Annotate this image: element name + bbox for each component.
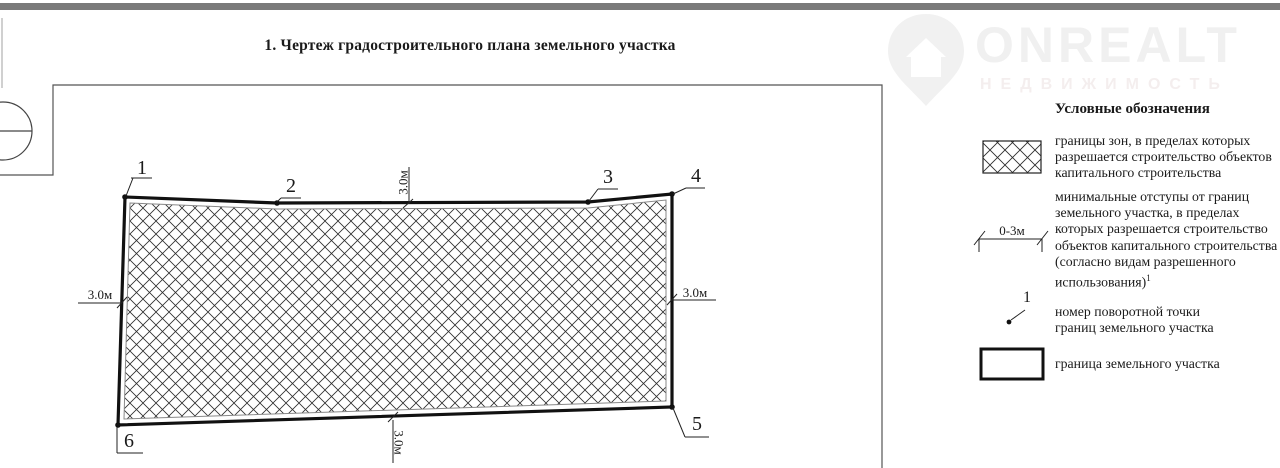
- footnote-marker: 1: [1146, 273, 1151, 283]
- dim-label-top: 3.0м: [397, 162, 410, 204]
- legend-item-turning-point: номер поворотной точки границ земельного…: [1055, 304, 1214, 336]
- point-label-1: 1: [132, 158, 152, 178]
- point-label-2: 2: [281, 176, 301, 196]
- point-label-5: 5: [687, 414, 707, 434]
- point-label-3: 3: [598, 167, 618, 187]
- point-label-4: 4: [686, 166, 706, 186]
- legend-item-plot-boundary: граница земельного участка: [1055, 356, 1220, 372]
- gpzu-drawing-page: { "page": { "title": "1. Чертеж градостр…: [0, 0, 1280, 468]
- point-label-6: 6: [119, 431, 139, 451]
- dim-label-right: 3.0м: [674, 286, 716, 299]
- legend-setback-range-label: 0-3м: [993, 223, 1031, 239]
- legend-boundary-swatch: [981, 349, 1043, 379]
- legend-item-setbacks: минимальные отступы от границ земельного…: [1055, 189, 1277, 291]
- dim-label-left: 3.0м: [79, 288, 121, 301]
- dim-label-bottom: 3.0м: [393, 422, 406, 464]
- buildable-zone-hatch: [124, 200, 666, 419]
- legend-turning-point-symbol: [1007, 310, 1025, 324]
- survey-circle-symbol: [0, 102, 32, 160]
- legend-crosshatch-swatch: [983, 141, 1041, 173]
- legend-turning-point-number: 1: [1023, 289, 1031, 307]
- legend-item-buildable-zone: границы зон, в пределах которых разрешае…: [1055, 133, 1272, 182]
- legend-title: Условные обозначения: [1055, 101, 1210, 118]
